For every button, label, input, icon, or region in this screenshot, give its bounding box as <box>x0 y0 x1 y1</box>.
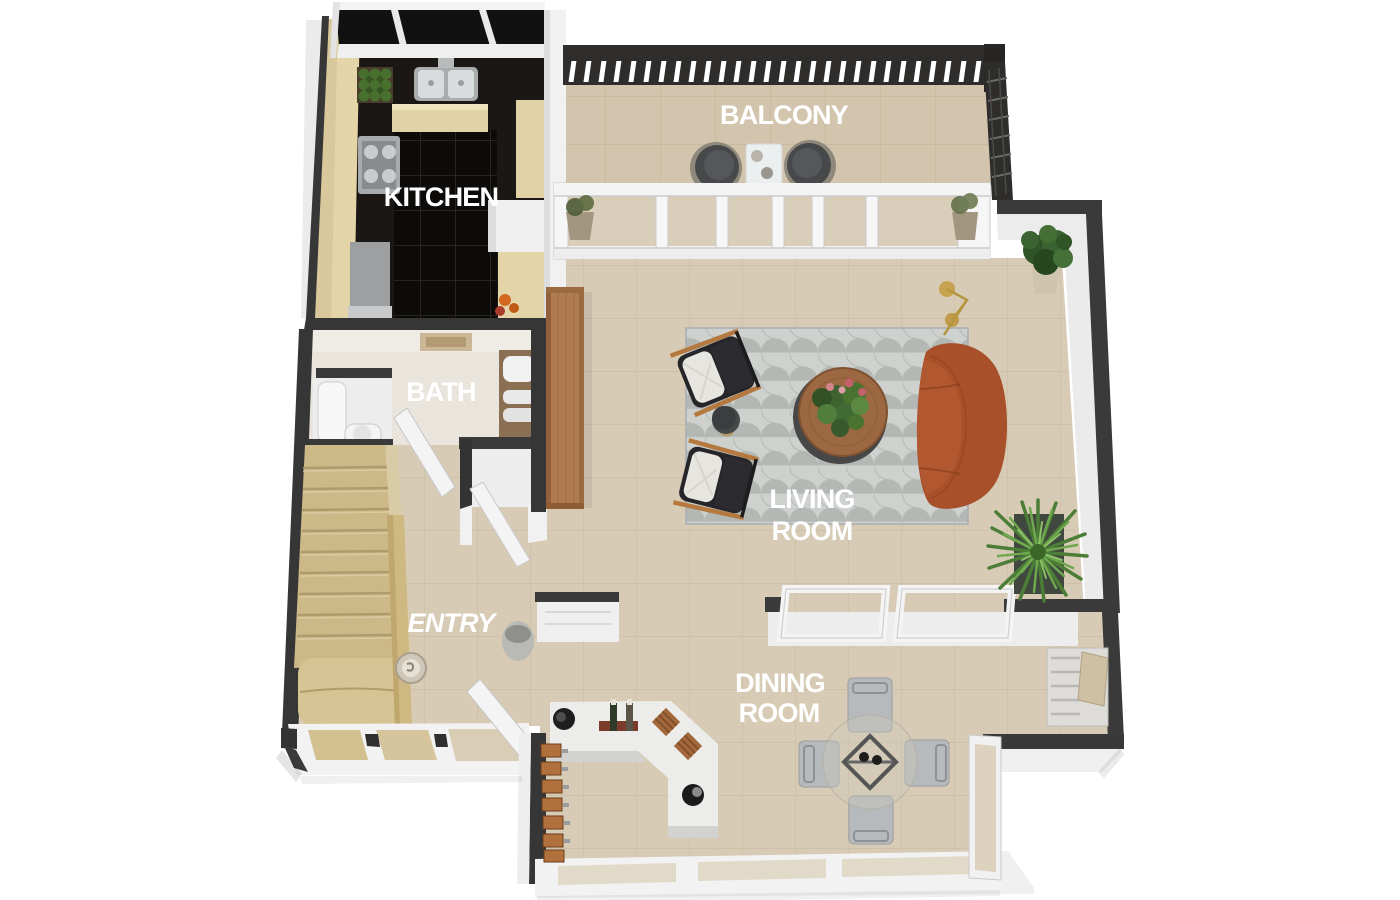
svg-text:ENTRY: ENTRY <box>407 608 498 638</box>
svg-text:ROOM: ROOM <box>772 516 853 546</box>
svg-text:KITCHEN: KITCHEN <box>384 182 498 212</box>
svg-text:LIVING: LIVING <box>769 484 854 514</box>
svg-text:BATH: BATH <box>406 377 476 407</box>
svg-text:DINING: DINING <box>735 668 825 698</box>
svg-text:BALCONY: BALCONY <box>720 100 849 130</box>
svg-text:ROOM: ROOM <box>739 698 820 728</box>
